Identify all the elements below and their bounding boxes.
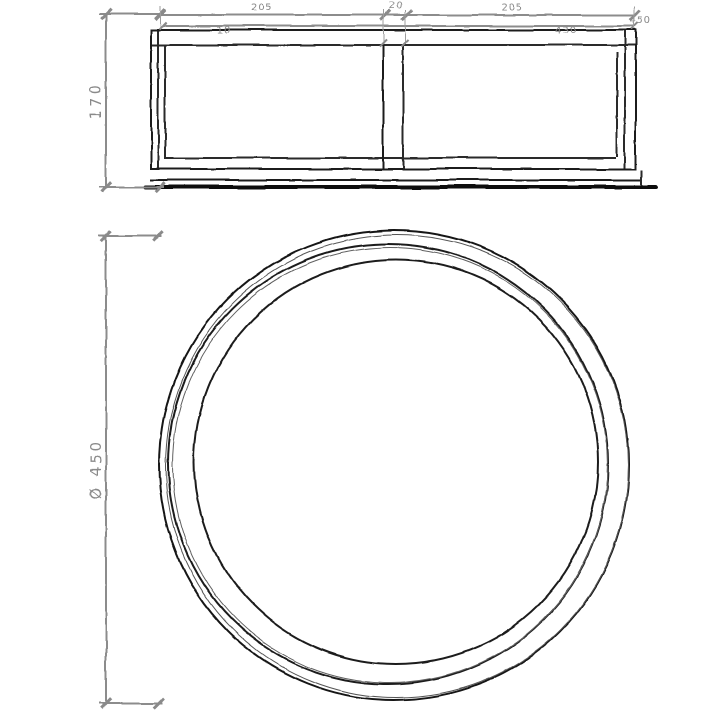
diameter-dimension-label: Ø 450: [87, 439, 105, 499]
front-center-seam-left: [382, 45, 384, 169]
inner-circle: [193, 259, 599, 665]
rim-width-label: 10: [217, 26, 232, 37]
front-left-rim-line: [157, 31, 159, 168]
front-bottom-edge: [143, 185, 658, 189]
extension-line: [634, 6, 635, 29]
front-center-seam-right: [402, 45, 404, 169]
height-dim-bottom-bar: [99, 186, 164, 188]
front-bottom-inner-line: [164, 157, 616, 159]
chain-left-label: 205: [251, 3, 273, 14]
front-view-outline: [150, 29, 637, 170]
drawing-sheet: 170 205 20 205 10 430 450: [0, 0, 720, 720]
technical-drawing: 170 205 20 205 10 430 450: [0, 0, 720, 720]
front-left-inner-wall: [164, 45, 166, 157]
front-bottom-right-step: [641, 170, 643, 186]
height-dimension-label: 170: [87, 82, 105, 120]
height-dim-top-bar: [99, 13, 164, 15]
height-dim-line: [105, 13, 107, 187]
front-bottom-plate-line: [150, 179, 643, 181]
front-right-inner-wall: [616, 52, 618, 157]
front-top-inner-line: [152, 44, 635, 46]
width-chain-dim-line: [160, 14, 635, 16]
chain-center-label: 20: [389, 1, 404, 12]
extension-line: [160, 6, 161, 29]
inner-width-label: 430: [555, 26, 577, 37]
chain-right-label: 205: [501, 3, 523, 14]
diameter-dim-line: [105, 235, 107, 704]
front-right-rim-line: [624, 31, 626, 168]
